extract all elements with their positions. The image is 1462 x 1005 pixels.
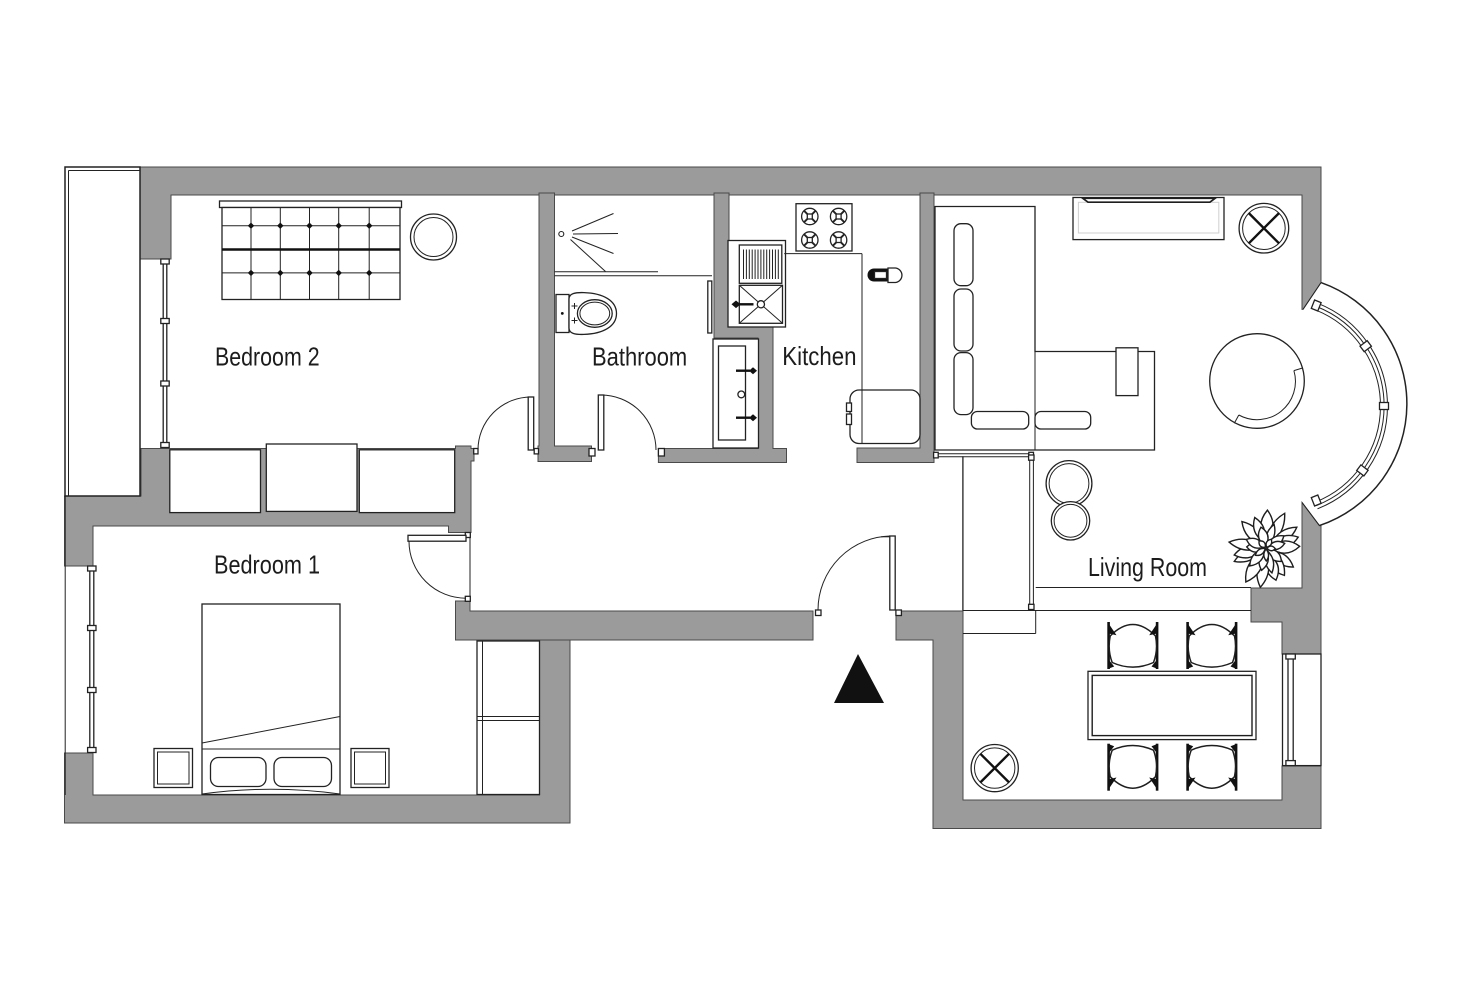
svg-text:Living Room: Living Room [1088, 552, 1207, 582]
svg-text:Bathroom: Bathroom [592, 342, 687, 372]
svg-text:Bedroom 1: Bedroom 1 [214, 550, 320, 580]
svg-text:Kitchen: Kitchen [782, 341, 856, 371]
svg-text:Bedroom 2: Bedroom 2 [215, 342, 320, 372]
